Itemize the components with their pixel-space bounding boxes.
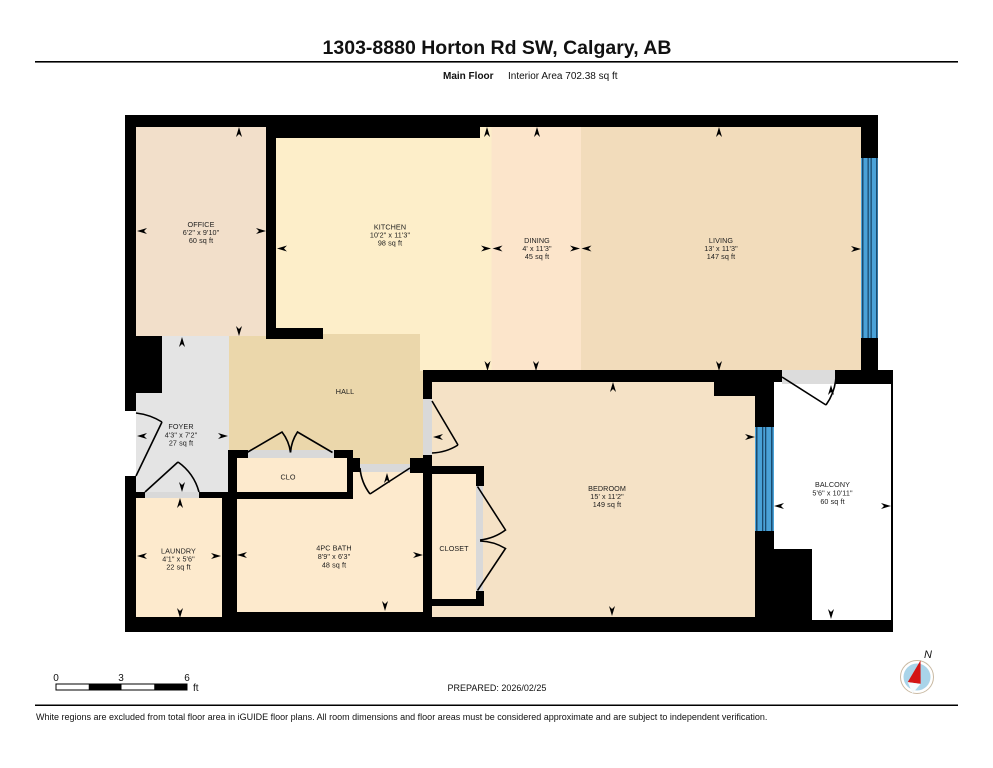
svg-text:60 sq ft: 60 sq ft	[189, 236, 213, 245]
svg-text:BALCONY: BALCONY	[815, 480, 850, 489]
svg-text:149 sq ft: 149 sq ft	[593, 500, 621, 509]
svg-text:60 sq ft: 60 sq ft	[820, 497, 844, 506]
svg-text:22 sq ft: 22 sq ft	[166, 563, 190, 572]
svg-text:48 sq ft: 48 sq ft	[322, 561, 346, 570]
svg-text:N: N	[924, 649, 932, 661]
svg-text:45 sq ft: 45 sq ft	[525, 252, 549, 261]
svg-text:ft: ft	[193, 683, 199, 694]
svg-text:PREPARED: 2026/02/25: PREPARED: 2026/02/25	[448, 683, 547, 693]
svg-text:0: 0	[53, 673, 59, 684]
svg-text:White regions are excluded fro: White regions are excluded from total fl…	[36, 712, 767, 722]
svg-text:HALL: HALL	[336, 387, 354, 396]
svg-text:CLO: CLO	[280, 473, 295, 482]
svg-text:147 sq ft: 147 sq ft	[707, 252, 735, 261]
svg-text:6: 6	[184, 673, 190, 684]
svg-text:27 sq ft: 27 sq ft	[169, 439, 193, 448]
svg-text:98 sq ft: 98 sq ft	[378, 239, 402, 248]
svg-text:Main Floor: Main Floor	[443, 71, 494, 82]
svg-text:1303-8880 Horton Rd SW, Calgar: 1303-8880 Horton Rd SW, Calgary, AB	[323, 37, 672, 59]
svg-text:Interior Area 702.38 sq ft: Interior Area 702.38 sq ft	[508, 71, 618, 82]
svg-text:CLOSET: CLOSET	[439, 544, 469, 553]
svg-text:3: 3	[118, 673, 124, 684]
